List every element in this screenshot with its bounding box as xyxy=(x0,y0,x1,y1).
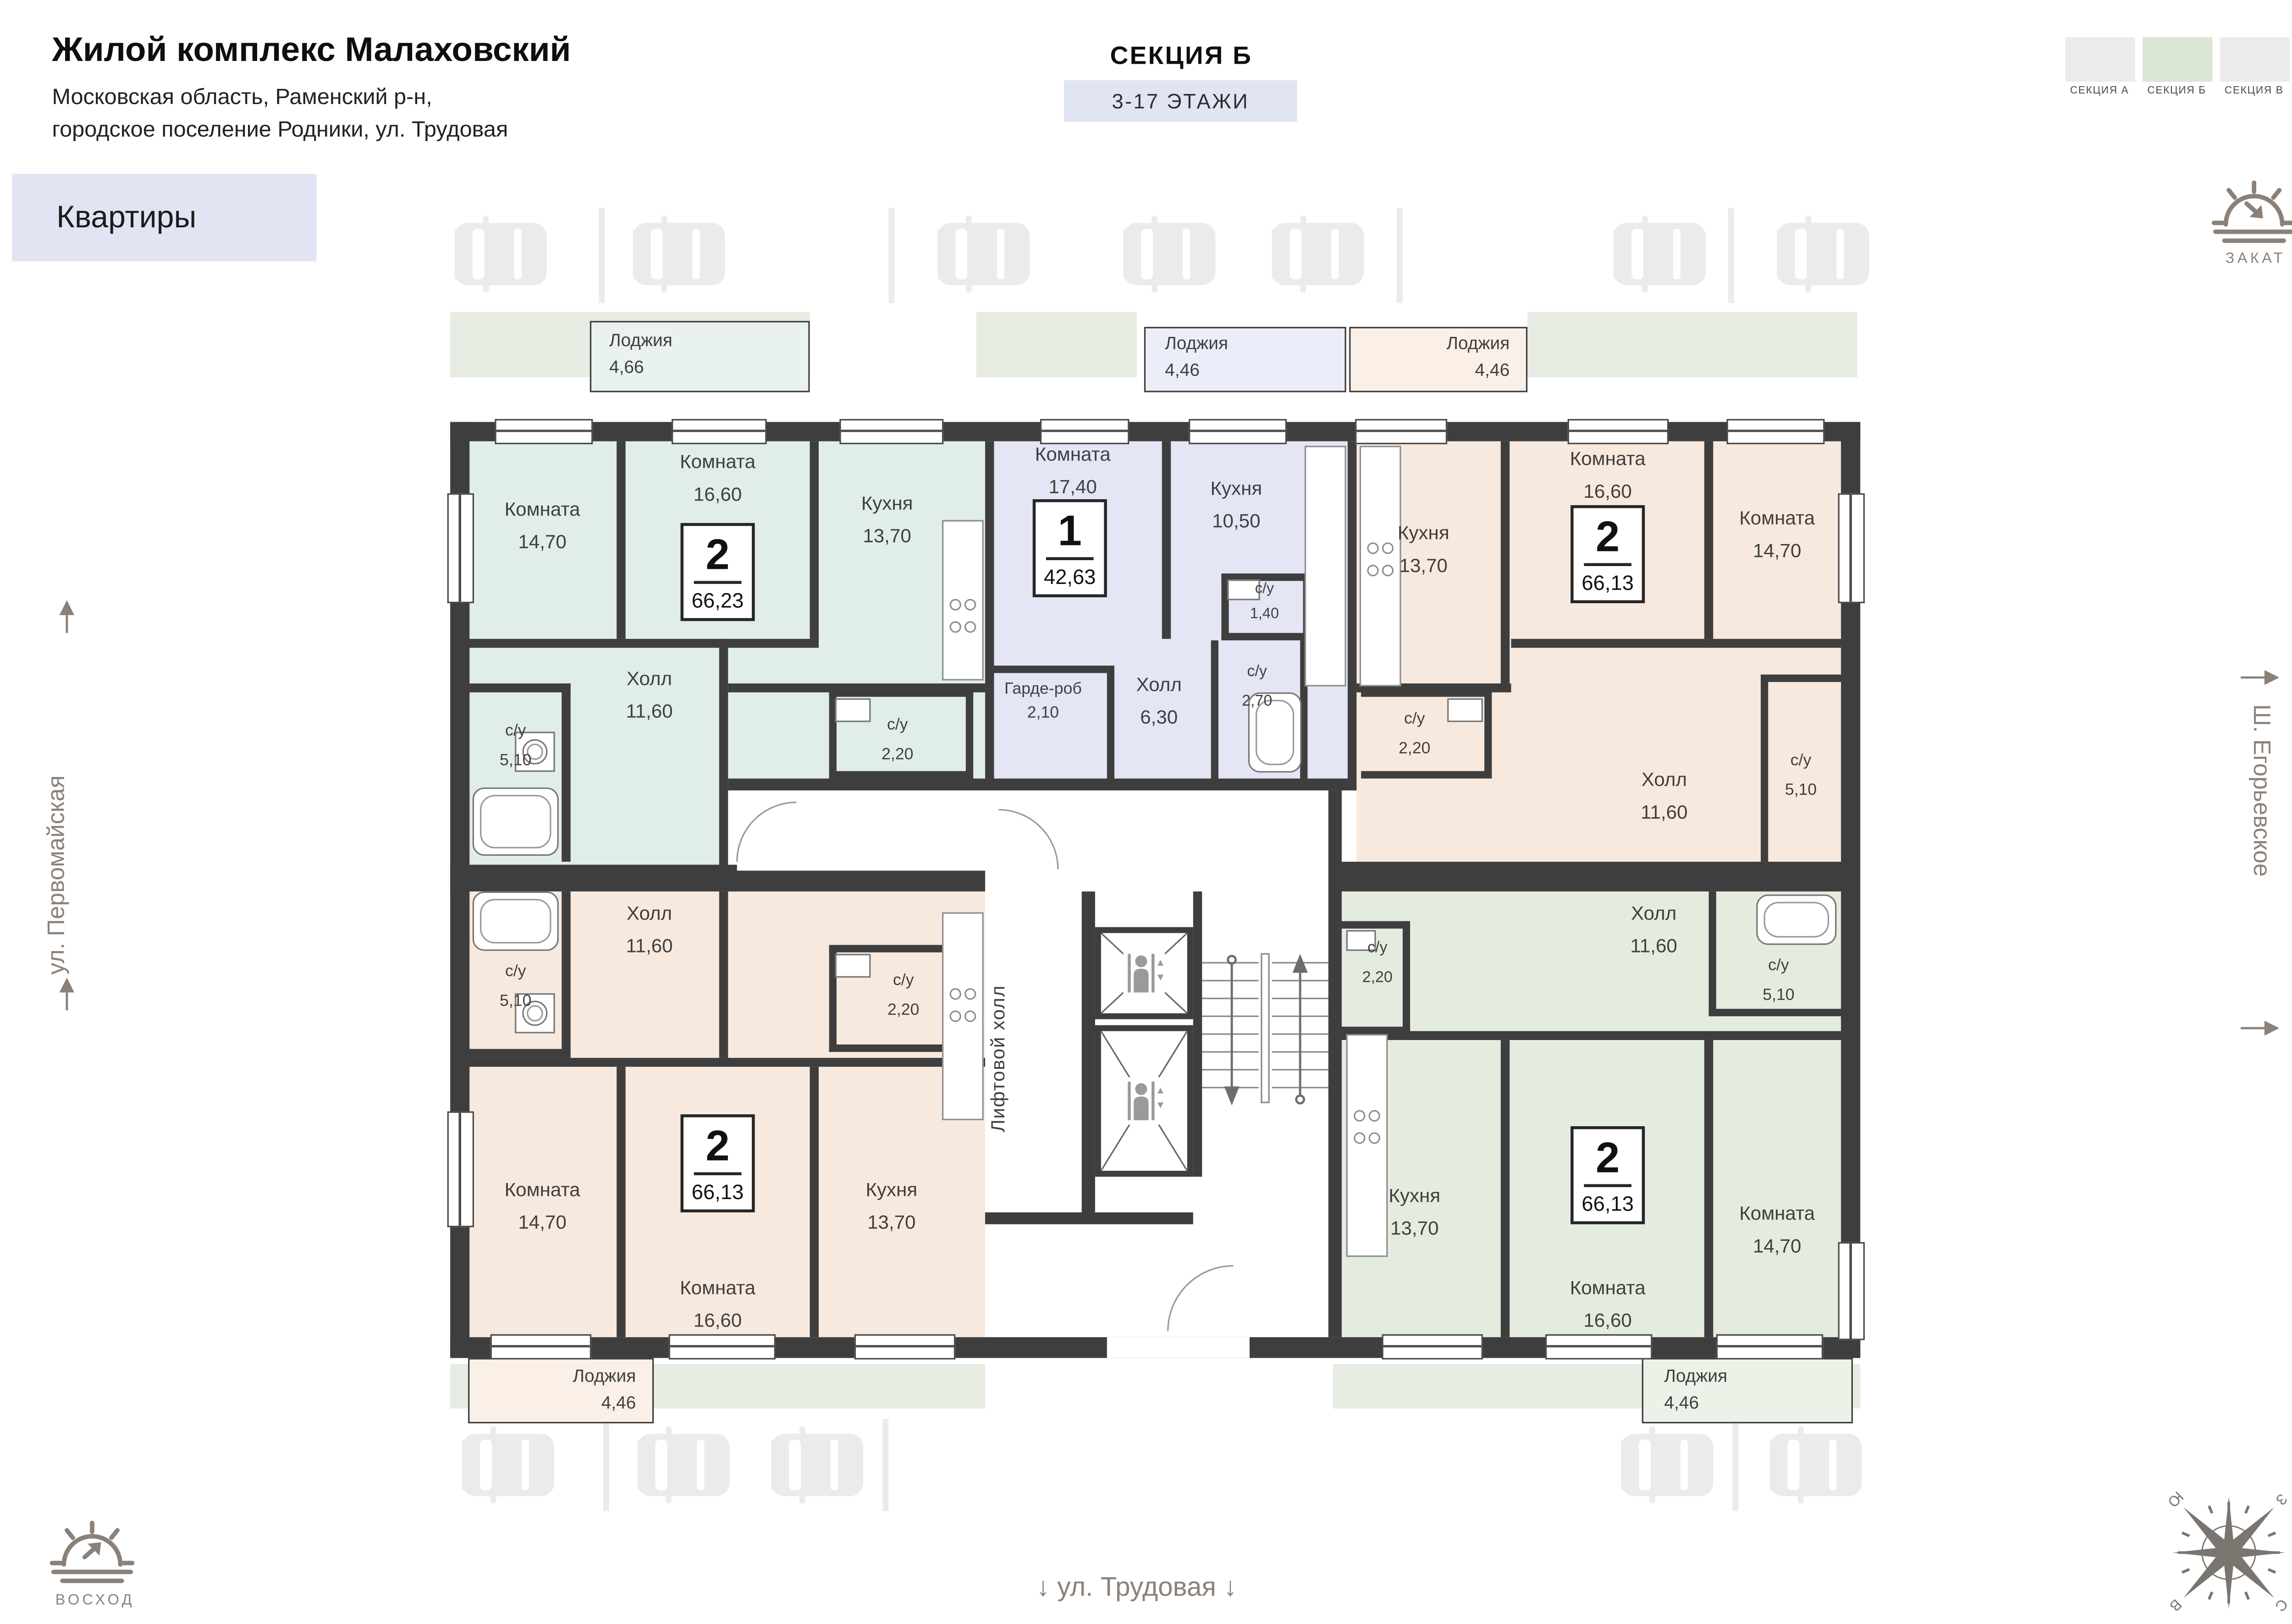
loggia-label: Лоджия 4,46 xyxy=(1165,330,1228,384)
room-label: Кухня13,70 xyxy=(861,487,913,553)
arrow-down-icon: ↓ xyxy=(1036,1572,1050,1602)
wall xyxy=(617,1067,625,1337)
window xyxy=(1189,419,1287,444)
window xyxy=(490,1334,591,1360)
wall xyxy=(450,864,737,891)
wall xyxy=(810,441,819,639)
apartment-3-badge: 266,13 xyxy=(1570,505,1645,603)
wall xyxy=(829,771,973,778)
greenery-strip xyxy=(1527,312,1857,378)
apartment-5-badge: 266,13 xyxy=(1570,1126,1645,1224)
svg-text:Ю: Ю xyxy=(2165,1488,2187,1510)
wall xyxy=(1361,689,1492,697)
sunset-label: ЗАКАТ xyxy=(2212,251,2292,268)
window xyxy=(839,419,943,444)
arrow-down-icon: ↓ xyxy=(1223,1572,1237,1602)
car-icon xyxy=(1775,215,1870,293)
legend-section-a-label: СЕКЦИЯ А xyxy=(2055,86,2144,97)
wall xyxy=(966,689,973,778)
greenery-strip xyxy=(976,312,1137,378)
legend-section-a-swatch[interactable] xyxy=(2066,37,2135,82)
wall xyxy=(1501,441,1510,683)
arrow-up-icon xyxy=(54,600,80,633)
wall xyxy=(1704,1040,1713,1337)
parking-divider xyxy=(882,1419,888,1511)
wall xyxy=(468,683,571,692)
wall xyxy=(1511,639,1843,648)
wall xyxy=(1221,633,1310,640)
room-label: Комната16,60 xyxy=(680,1272,755,1338)
wall xyxy=(1107,666,1114,778)
wall xyxy=(562,683,570,862)
stove-icon xyxy=(1349,1102,1385,1156)
window xyxy=(854,1334,955,1360)
parking-divider xyxy=(599,208,605,303)
wall xyxy=(617,441,625,639)
wall xyxy=(468,639,819,648)
wall xyxy=(719,892,728,1058)
room-label: Комната16,60 xyxy=(1570,1272,1646,1338)
wall xyxy=(1328,790,1342,1337)
window xyxy=(672,419,766,444)
sunrise-icon xyxy=(50,1519,134,1587)
wall xyxy=(1211,640,1218,778)
wall xyxy=(468,1058,985,1067)
room-label: Кухня10,50 xyxy=(1210,473,1262,538)
car-icon xyxy=(1620,1426,1714,1504)
room-label: с/у2,20 xyxy=(882,710,913,770)
window xyxy=(1382,1334,1483,1360)
car-icon xyxy=(1612,215,1707,293)
room-label: Комната16,60 xyxy=(1570,443,1646,508)
svg-text:В: В xyxy=(2166,1596,2185,1615)
legend-section-b-label: СЕКЦИЯ Б xyxy=(2132,86,2221,97)
room-label: Комната17,40 xyxy=(1035,438,1111,504)
wall xyxy=(1342,1031,1842,1040)
arrow-right-icon xyxy=(2241,666,2279,689)
wall xyxy=(562,892,570,1058)
wall xyxy=(1501,1040,1510,1337)
svg-text:С: С xyxy=(2272,1596,2291,1615)
room-label: с/у1,40 xyxy=(1250,577,1279,627)
window xyxy=(1838,1242,1865,1340)
sunrise-label: ВОСХОД xyxy=(36,1593,154,1609)
section-title: СЕКЦИЯ Б xyxy=(996,42,1367,72)
wall xyxy=(728,870,985,891)
wall xyxy=(1342,921,1410,929)
car-icon xyxy=(453,215,548,293)
room-label: с/у2,20 xyxy=(1399,704,1430,764)
elevator-icon xyxy=(1095,927,1193,1019)
apartment-4-badge: 266,13 xyxy=(681,1114,755,1212)
apartment-2-badge: 142,63 xyxy=(1033,499,1107,597)
room-label: Холл11,60 xyxy=(1630,897,1677,963)
window xyxy=(447,1112,474,1228)
parking-divider xyxy=(1732,1419,1738,1511)
car-icon xyxy=(461,1426,556,1504)
window xyxy=(1568,419,1669,444)
room-label: Холл11,60 xyxy=(626,897,672,963)
window xyxy=(1838,493,1865,603)
wall xyxy=(1361,771,1492,778)
window xyxy=(669,1334,776,1360)
wall xyxy=(1761,675,1842,682)
car-icon xyxy=(632,215,727,293)
svg-text:З: З xyxy=(2273,1491,2291,1508)
room-label: Холл6,30 xyxy=(1136,669,1182,734)
room-label: с/у5,10 xyxy=(1785,746,1817,805)
sink xyxy=(1447,698,1483,722)
loggia-label: Лоджия 4,46 xyxy=(1397,330,1510,384)
wall xyxy=(1333,862,1843,892)
lift-hall-label: Лифтовой холл xyxy=(985,912,1074,1203)
room-label: с/у5,10 xyxy=(1763,951,1794,1010)
wall xyxy=(985,1212,1193,1224)
legend-section-v-label: СЕКЦИЯ В xyxy=(2209,86,2292,97)
sink xyxy=(835,954,871,978)
window xyxy=(1727,419,1825,444)
street-right-label: Ш. Егорьевское xyxy=(2247,704,2273,1001)
elevator-icon xyxy=(1095,1025,1193,1177)
street-bottom-label: ул. Трудовая xyxy=(1057,1572,1216,1602)
room-label: с/у2,20 xyxy=(887,966,919,1025)
wall xyxy=(1082,892,1095,1212)
room-label: Комната14,70 xyxy=(505,1174,580,1239)
car-icon xyxy=(1270,215,1365,293)
wall xyxy=(1704,441,1713,639)
wall xyxy=(1193,892,1202,1177)
wall xyxy=(829,689,973,697)
floors-badge: 3-17 ЭТАЖИ xyxy=(1064,80,1297,122)
wall xyxy=(1709,892,1716,1016)
wall xyxy=(468,1049,571,1057)
room-label: Холл11,60 xyxy=(626,663,672,728)
apartment-1-badge: 266,23 xyxy=(681,523,755,621)
parking-divider xyxy=(888,208,894,303)
room-label: с/у2,70 xyxy=(1242,657,1272,716)
wall xyxy=(810,1067,819,1337)
sunset-icon xyxy=(2212,178,2292,247)
bathtub xyxy=(1756,894,1836,945)
parking-divider xyxy=(1728,208,1734,303)
legend-section-v-swatch[interactable] xyxy=(2220,37,2290,82)
car-icon xyxy=(1122,215,1217,293)
room-label: Кухня13,70 xyxy=(865,1174,917,1239)
wall xyxy=(985,441,994,779)
entrance-opening xyxy=(1107,1337,1250,1358)
wall xyxy=(728,778,1356,790)
loggia-label: Лоджия 4,66 xyxy=(609,327,672,380)
car-icon xyxy=(636,1426,731,1504)
page-subtitle: Московская область, Раменский р-н, город… xyxy=(52,82,508,147)
window xyxy=(1355,419,1447,444)
stairs xyxy=(1202,951,1328,1111)
window xyxy=(495,419,593,444)
room-label: Комната14,70 xyxy=(1739,1198,1815,1263)
door-arc xyxy=(1168,1266,1234,1332)
subtitle-line2: городское поселение Родники, ул. Трудова… xyxy=(52,115,508,147)
sink xyxy=(835,698,871,722)
loggia-label: Лоджия 4,46 xyxy=(473,1362,636,1416)
room-label: Комната14,70 xyxy=(1739,502,1815,568)
wall xyxy=(1403,921,1410,1034)
room-label: Холл11,60 xyxy=(1641,764,1687,829)
street-left-label: ул. Первомайская xyxy=(44,636,71,974)
stove-icon xyxy=(945,591,981,645)
page: Жилой комплекс Малаховский Московская об… xyxy=(0,0,2292,1624)
window xyxy=(447,493,474,603)
room-label: с/у5,10 xyxy=(500,716,531,776)
room-label: Комната16,60 xyxy=(680,446,755,511)
stove-icon xyxy=(945,980,981,1034)
room-label: с/у5,10 xyxy=(500,957,531,1016)
page-title: Жилой комплекс Малаховский xyxy=(52,30,571,70)
car-icon xyxy=(1768,1426,1863,1504)
compass-icon: С Ю З В xyxy=(2162,1486,2292,1619)
parking-divider xyxy=(1397,208,1403,303)
wall xyxy=(1761,675,1768,862)
car-icon xyxy=(770,1426,865,1504)
wall xyxy=(1162,441,1171,639)
apartments-button[interactable]: Квартиры xyxy=(12,174,316,261)
window xyxy=(1716,1334,1823,1360)
window xyxy=(1545,1334,1652,1360)
wall xyxy=(994,666,1107,673)
legend-section-b-swatch[interactable] xyxy=(2143,37,2212,82)
door-arc xyxy=(737,802,797,862)
car-icon xyxy=(936,215,1031,293)
loggia-label: Лоджия 4,46 xyxy=(1664,1362,1727,1416)
arrow-up-icon xyxy=(54,978,80,1010)
room-label: Кухня13,70 xyxy=(1398,517,1449,583)
room-label: Кухня13,70 xyxy=(1388,1180,1440,1245)
kitchen-counter xyxy=(1305,446,1346,686)
stove-icon xyxy=(1362,535,1398,589)
arrow-right-icon xyxy=(2241,1016,2279,1040)
wall xyxy=(1484,689,1492,778)
bathtub xyxy=(473,892,559,951)
bathtub xyxy=(473,787,559,856)
subtitle-line1: Московская область, Раменский р-н, xyxy=(52,82,508,114)
wall xyxy=(719,639,728,865)
street-bottom: ↓ ул. Трудовая ↓ xyxy=(921,1572,1352,1603)
door-arc xyxy=(998,810,1058,870)
room-label: Гарде-роб 2,10 xyxy=(1000,677,1086,725)
wall xyxy=(1348,441,1356,779)
room-label: с/у2,20 xyxy=(1362,933,1393,993)
parking-divider xyxy=(603,1419,609,1511)
room-label: Комната14,70 xyxy=(505,493,580,559)
